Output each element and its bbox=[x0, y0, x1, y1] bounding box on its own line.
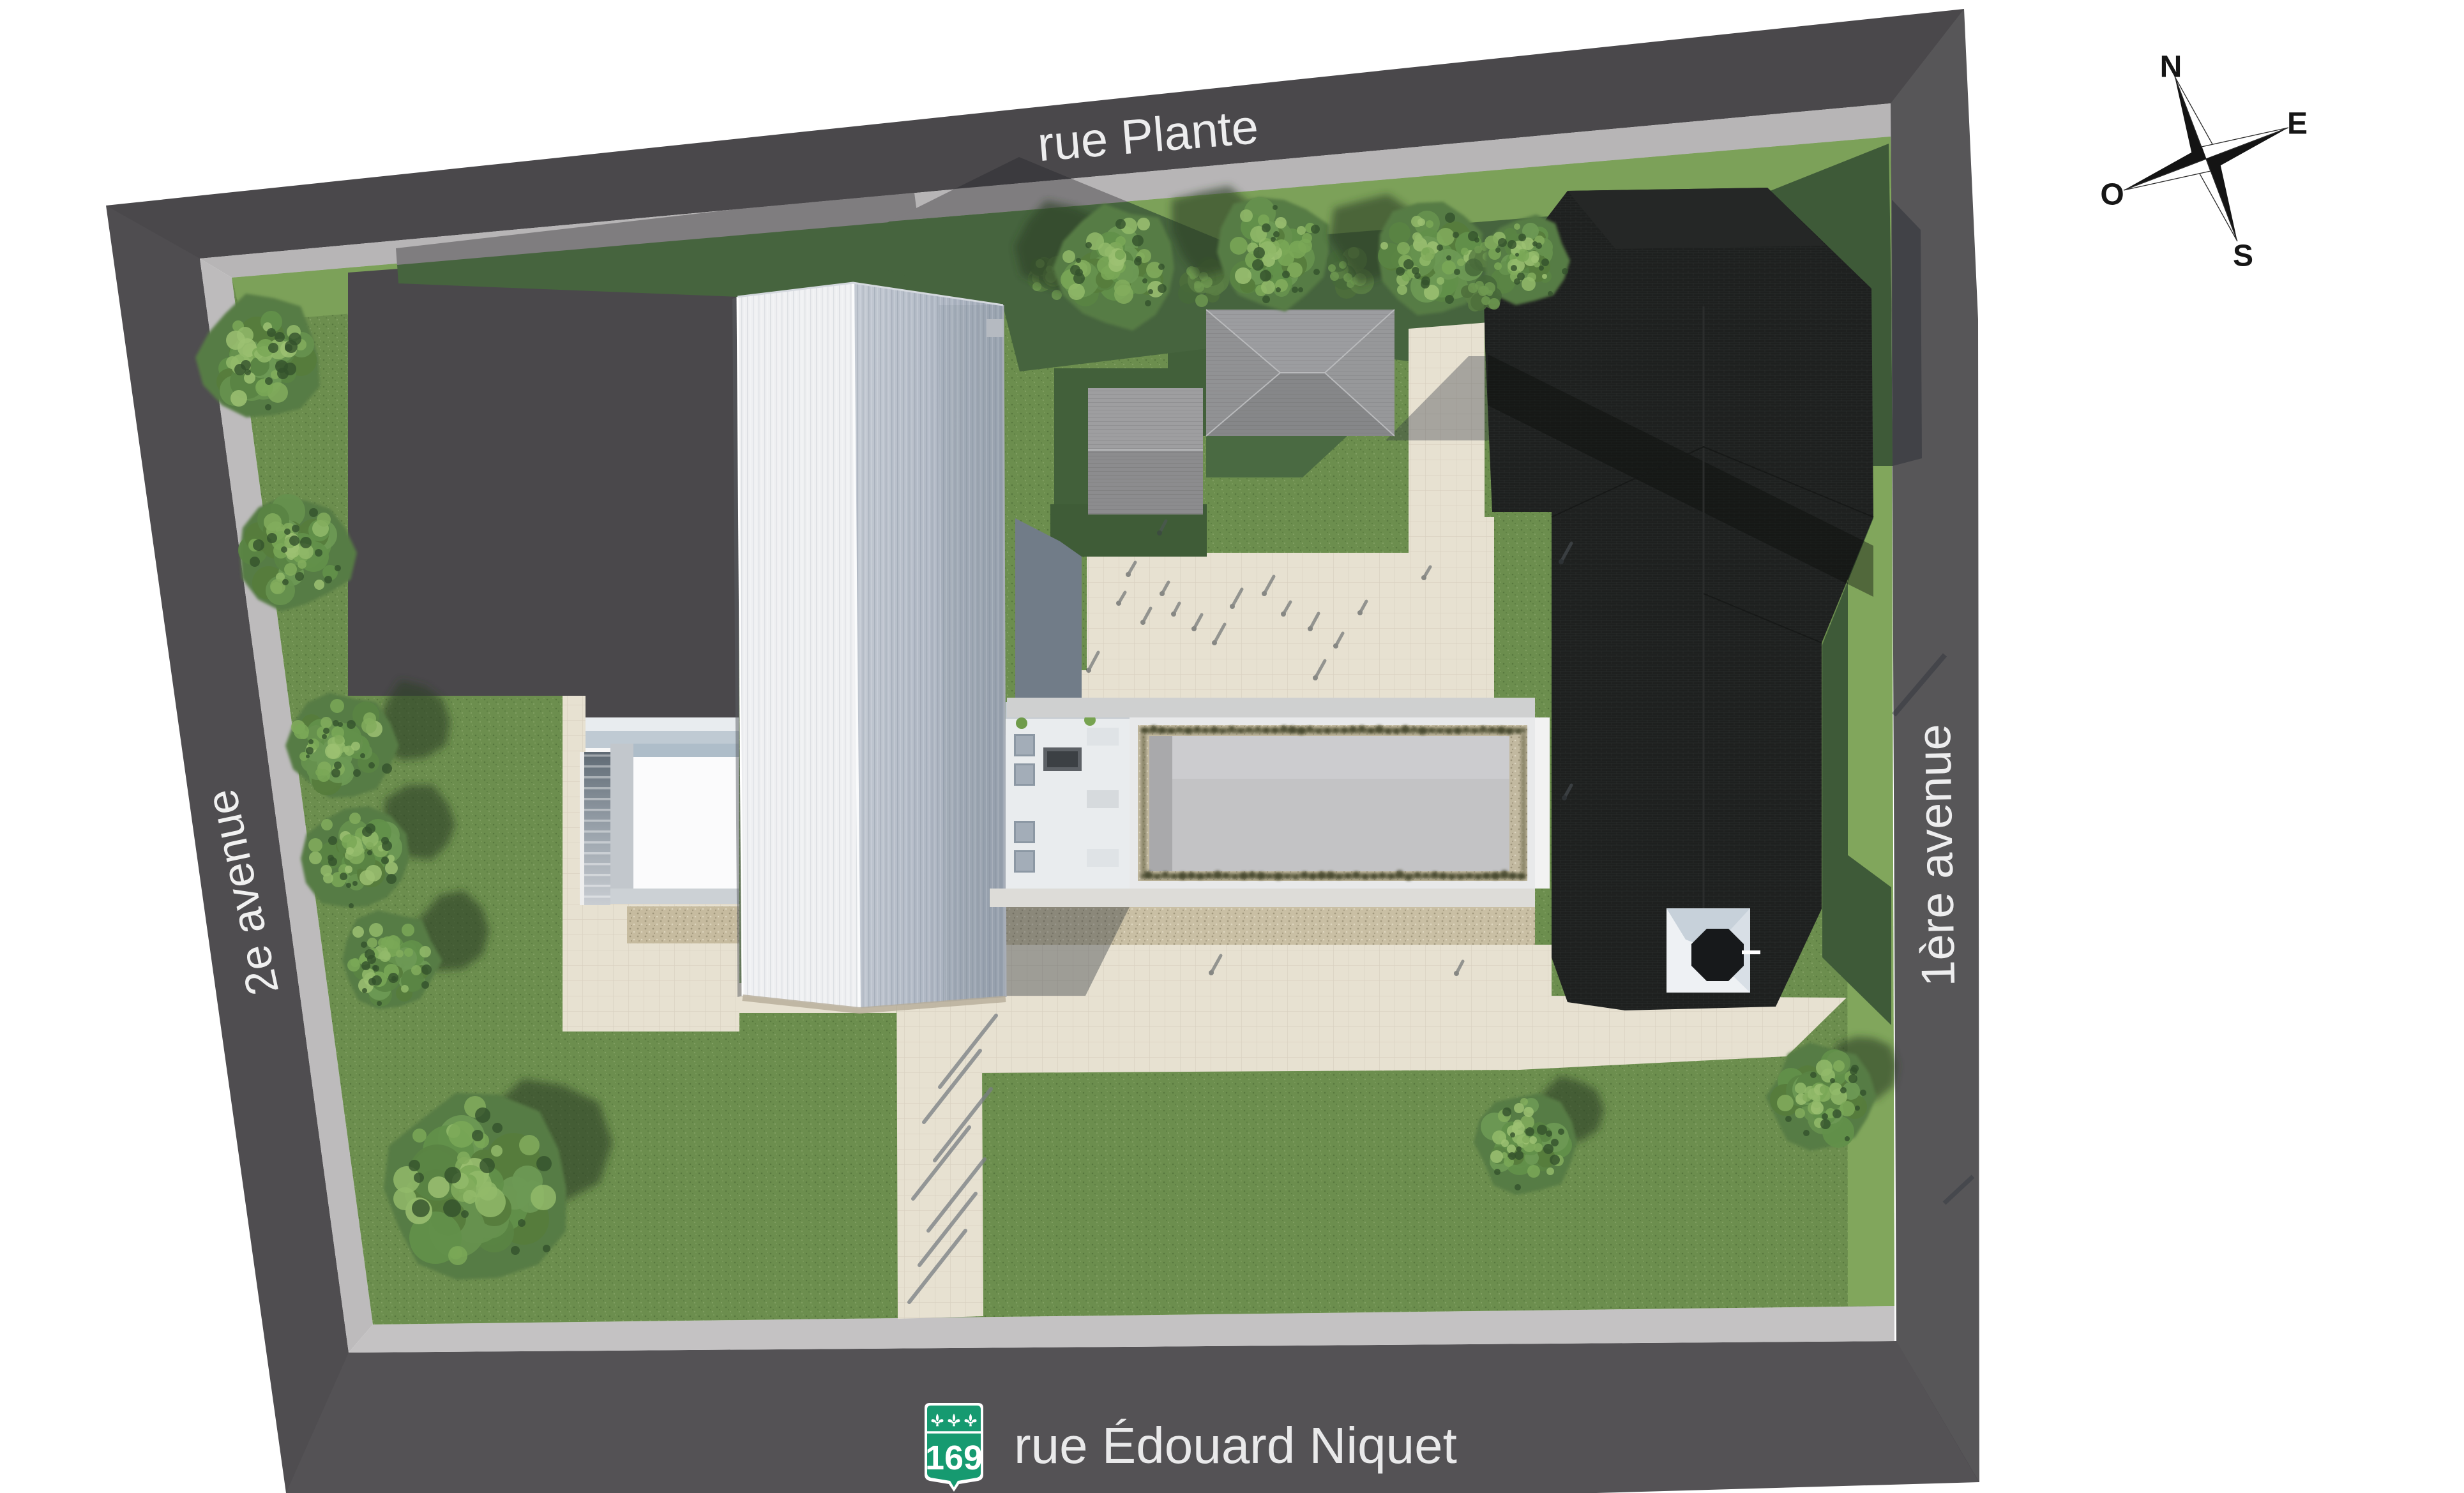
svg-text:N: N bbox=[2160, 50, 2182, 84]
svg-text:S: S bbox=[2233, 239, 2253, 273]
svg-text:E: E bbox=[2287, 107, 2308, 141]
svg-text:O: O bbox=[2100, 178, 2124, 212]
svg-text:1ère avenue: 1ère avenue bbox=[1907, 724, 1965, 987]
svg-text:rue Édouard Niquet: rue Édouard Niquet bbox=[1014, 1417, 1457, 1474]
svg-text:169: 169 bbox=[925, 1439, 983, 1477]
